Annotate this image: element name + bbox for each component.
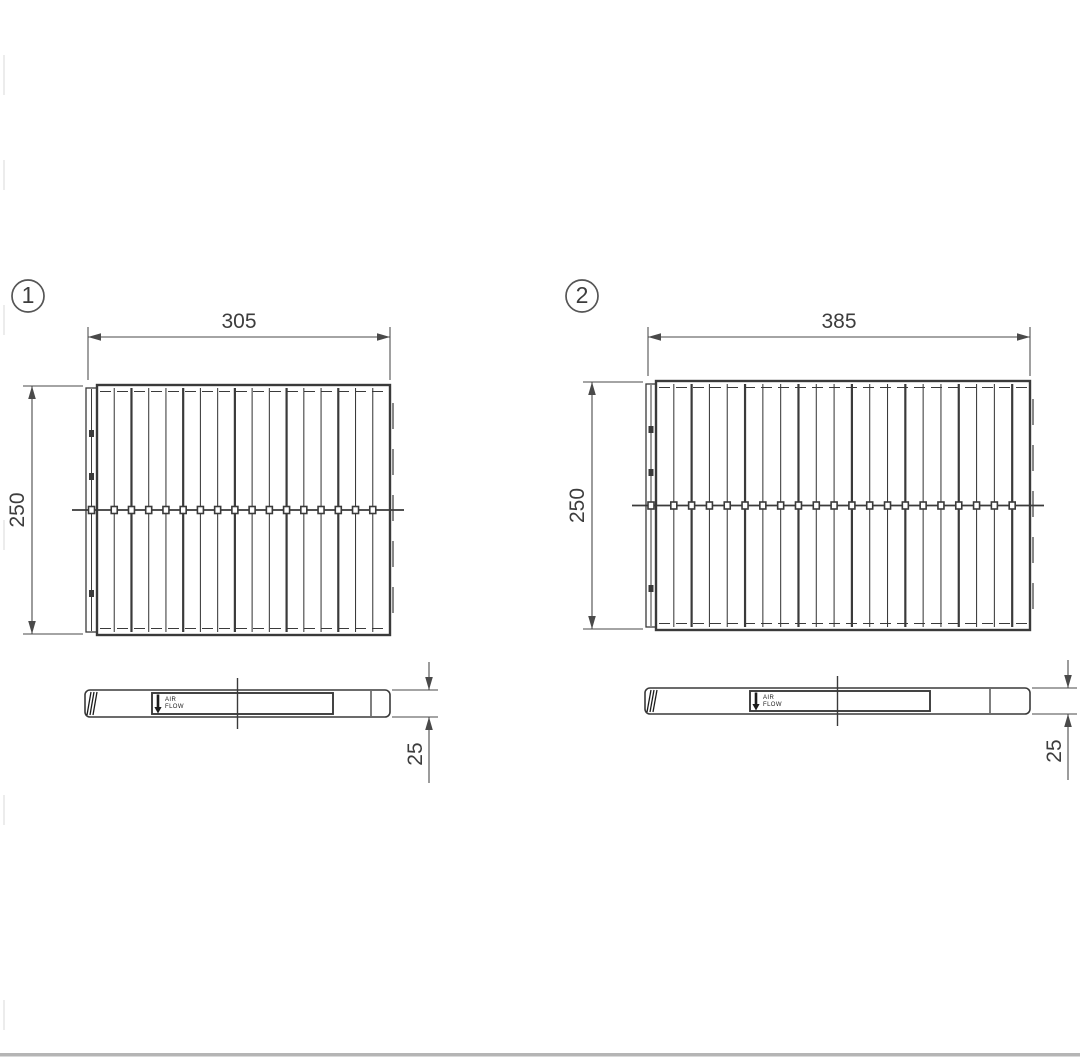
thickness-dimension: 25 bbox=[1032, 660, 1077, 780]
seam-clip bbox=[778, 502, 784, 509]
width-dimension-text: 385 bbox=[821, 310, 856, 333]
arrowhead bbox=[648, 333, 661, 341]
part-number-text: 2 bbox=[576, 282, 589, 308]
part-2-drawing: 2385250AIRFLOW25 bbox=[566, 280, 1077, 780]
part-number-badge: 2 bbox=[566, 280, 598, 312]
strip-clip-mark bbox=[89, 430, 94, 437]
strip-clip-mark bbox=[89, 590, 94, 597]
seam-clip bbox=[89, 507, 95, 514]
thickness-dimension-text: 25 bbox=[404, 742, 427, 765]
width-dimension: 385 bbox=[648, 310, 1030, 376]
arrowhead bbox=[377, 333, 390, 341]
seam-clip bbox=[266, 507, 272, 514]
strip-clip-mark bbox=[649, 426, 654, 433]
seam-clip bbox=[671, 502, 677, 509]
seam-clip bbox=[111, 507, 117, 514]
arrowhead bbox=[1064, 675, 1072, 688]
seam-clip bbox=[991, 502, 997, 509]
seam-clip bbox=[849, 502, 855, 509]
arrowhead bbox=[425, 677, 433, 690]
seam-clip bbox=[956, 502, 962, 509]
part-number-text: 1 bbox=[22, 282, 35, 308]
seam-clip bbox=[215, 507, 221, 514]
seam-clip bbox=[831, 502, 837, 509]
seam-clip bbox=[353, 507, 359, 514]
seam-clip bbox=[163, 507, 169, 514]
seam-clip bbox=[335, 507, 341, 514]
seam-clip bbox=[920, 502, 926, 509]
seam-clip bbox=[706, 502, 712, 509]
part-number-badge: 1 bbox=[12, 280, 44, 312]
arrowhead bbox=[588, 616, 596, 629]
seam-clip bbox=[232, 507, 238, 514]
seam-clip bbox=[318, 507, 324, 514]
scan-artifacts bbox=[3, 55, 5, 1030]
filter-front-view bbox=[632, 381, 1044, 630]
seam-clip bbox=[813, 502, 819, 509]
strip-clip-mark bbox=[649, 469, 654, 476]
scan-edge-mark bbox=[3, 520, 5, 550]
thickness-dimension-text: 25 bbox=[1043, 739, 1066, 762]
seam-clip bbox=[760, 502, 766, 509]
arrowhead bbox=[425, 717, 433, 730]
scan-edge-mark bbox=[3, 305, 5, 335]
arrowhead bbox=[1064, 714, 1072, 727]
scan-edge-mark bbox=[3, 795, 5, 825]
seam-clip bbox=[180, 507, 186, 514]
seam-clip bbox=[146, 507, 152, 514]
seam-clip bbox=[689, 502, 695, 509]
arrowhead bbox=[28, 621, 36, 634]
filter-side-view: AIRFLOW bbox=[645, 676, 1030, 726]
seam-clip bbox=[867, 502, 873, 509]
seam-clip bbox=[885, 502, 891, 509]
airflow-arrow-head bbox=[154, 707, 161, 714]
label-plate bbox=[750, 691, 930, 711]
drawing-page: 1305250AIRFLOW252385250AIRFLOW25 bbox=[0, 0, 1080, 1064]
seam-clip bbox=[1009, 502, 1015, 509]
arrowhead bbox=[88, 333, 101, 341]
airflow-text-line1: AIR bbox=[763, 695, 774, 701]
arrowhead bbox=[588, 382, 596, 395]
seam-clip bbox=[724, 502, 730, 509]
part-1-drawing: 1305250AIRFLOW25 bbox=[6, 280, 438, 783]
scan-edge-mark bbox=[3, 1000, 5, 1030]
seam-clip bbox=[742, 502, 748, 509]
height-dimension: 250 bbox=[566, 382, 643, 629]
filter-side-view: AIRFLOW bbox=[85, 678, 390, 729]
arrowhead bbox=[28, 386, 36, 399]
seam-clip bbox=[197, 507, 203, 514]
strip-clip-mark bbox=[649, 585, 654, 592]
thickness-dimension: 25 bbox=[392, 662, 438, 783]
seam-clip bbox=[938, 502, 944, 509]
seam-clip bbox=[974, 502, 980, 509]
airflow-marking: AIRFLOW bbox=[752, 693, 782, 711]
width-dimension: 305 bbox=[88, 310, 390, 380]
airflow-text-line1: AIR bbox=[165, 697, 176, 703]
height-dimension: 250 bbox=[6, 386, 83, 634]
airflow-text-line2: FLOW bbox=[763, 702, 782, 708]
height-dimension-text: 250 bbox=[566, 488, 589, 523]
seam-clip bbox=[648, 502, 654, 509]
airflow-marking: AIRFLOW bbox=[154, 695, 184, 714]
seam-clip bbox=[128, 507, 134, 514]
seam-clip bbox=[902, 502, 908, 509]
width-dimension-text: 305 bbox=[221, 310, 256, 333]
airflow-text-line2: FLOW bbox=[165, 704, 184, 710]
scan-edge-mark bbox=[3, 55, 5, 95]
airflow-arrow-head bbox=[752, 704, 759, 711]
seam-clip bbox=[370, 507, 376, 514]
filter-front-view bbox=[72, 385, 404, 635]
arrowhead bbox=[1017, 333, 1030, 341]
seam-clip bbox=[795, 502, 801, 509]
seam-clip bbox=[301, 507, 307, 514]
seam-clip bbox=[249, 507, 255, 514]
strip-clip-mark bbox=[89, 473, 94, 480]
seam-clip bbox=[284, 507, 290, 514]
footer-rule bbox=[0, 1053, 1080, 1057]
scan-edge-mark bbox=[3, 160, 5, 190]
filter-dimension-figure: 1305250AIRFLOW252385250AIRFLOW25 bbox=[0, 0, 1080, 1064]
height-dimension-text: 250 bbox=[6, 492, 29, 527]
